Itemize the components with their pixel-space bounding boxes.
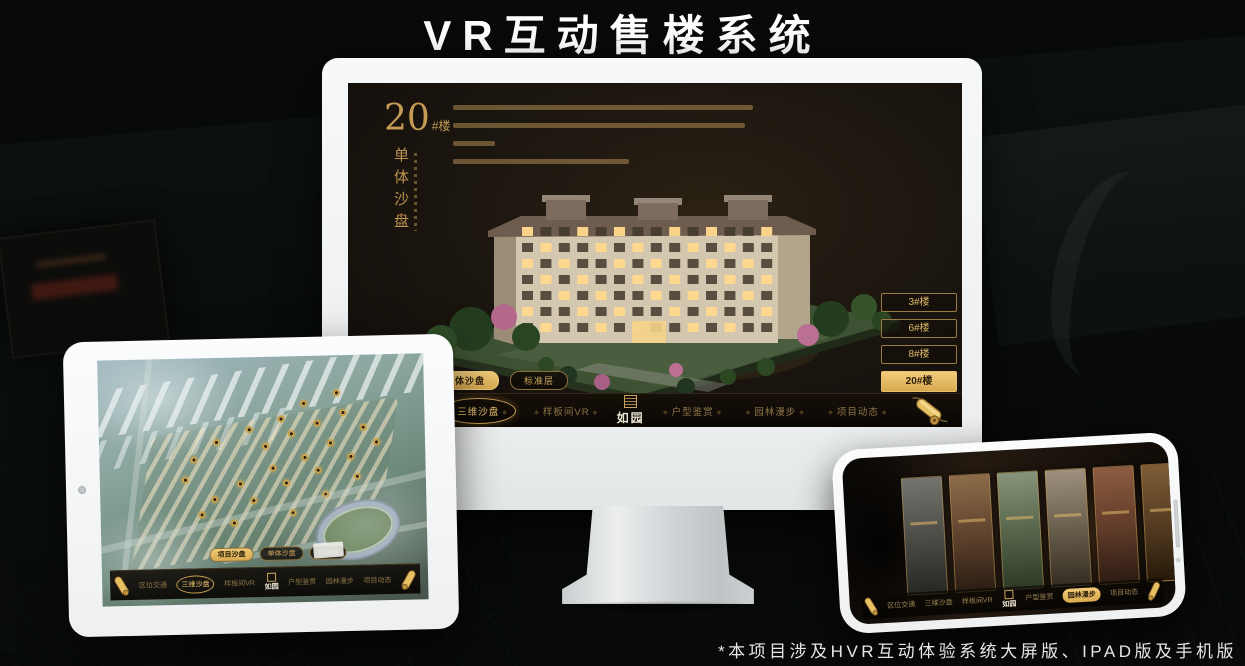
cloud-mist: [97, 353, 249, 461]
window-dot: [651, 259, 662, 268]
stage: VR互动售楼系统 20#楼 单体沙盘: [0, 0, 1245, 666]
window-dot: [577, 275, 588, 284]
nav-item-garden-walk[interactable]: 园林漫步: [326, 575, 354, 586]
nav-item-floorplan-gallery[interactable]: 户型鉴赏: [288, 576, 316, 587]
window-dot: [743, 275, 754, 284]
nav-item-model-room-vr[interactable]: 样板间VR: [529, 401, 603, 421]
window-dot: [669, 323, 680, 332]
window-dot: [651, 307, 662, 316]
window-dot: [522, 243, 533, 252]
text-line: [453, 159, 629, 164]
window-dot: [577, 259, 588, 268]
window-dot: [632, 275, 643, 284]
window-dot: [761, 275, 772, 284]
window-dot: [743, 243, 754, 252]
scroll-menu-icon[interactable]: [1147, 580, 1161, 603]
background-sign: [0, 219, 170, 359]
window-dot: [540, 227, 551, 236]
seal-icon: [624, 395, 637, 408]
gallery-card[interactable]: [901, 476, 949, 596]
window-dot: [724, 323, 735, 332]
gallery-card[interactable]: [997, 470, 1045, 590]
building-badge[interactable]: [300, 400, 307, 407]
window-dot: [596, 243, 607, 252]
window-dot: [577, 323, 588, 332]
window-dot: [540, 243, 551, 252]
window-dot: [559, 275, 570, 284]
window-dot: [688, 259, 699, 268]
window-dot: [724, 291, 735, 300]
nav-item-garden-walk[interactable]: 园林漫步: [1062, 587, 1101, 603]
nav-item-project-news[interactable]: 项目动态: [823, 401, 892, 421]
window-dot: [706, 307, 717, 316]
window-dot: [651, 243, 662, 252]
window-dot: [614, 275, 625, 284]
brand-logo: 如园: [1002, 589, 1017, 609]
window-dot: [596, 259, 607, 268]
building-badge[interactable]: [314, 420, 321, 427]
nav-item-garden-walk[interactable]: 园林漫步: [741, 401, 810, 421]
nav-item-project-news[interactable]: 项目动态: [363, 575, 391, 586]
window-dot: [688, 243, 699, 252]
window-dot: [522, 227, 533, 236]
nav-item-3d-sandbox[interactable]: 三维沙盘: [924, 597, 953, 609]
monitor-stand-shadow: [545, 601, 773, 613]
building-badge[interactable]: [211, 496, 218, 503]
window-dot: [706, 275, 717, 284]
nav-item-location-transport[interactable]: 区位交通: [887, 599, 916, 611]
window-dot: [688, 227, 699, 236]
building-badge[interactable]: [301, 454, 308, 461]
window-dot: [596, 323, 607, 332]
window-dot: [669, 275, 680, 284]
window-dot: [724, 307, 735, 316]
window-dot: [540, 323, 551, 332]
window-dot: [724, 259, 735, 268]
background-river: [1031, 160, 1190, 391]
nav-item-project-news[interactable]: 项目动态: [1110, 587, 1139, 599]
building-badge[interactable]: [288, 430, 295, 437]
gallery-card[interactable]: [949, 473, 997, 593]
window-dot: [706, 227, 717, 236]
building-number: 20: [384, 98, 430, 139]
sign-red-text-blur: [31, 274, 118, 300]
window-dot: [522, 291, 533, 300]
nav-item-floorplan-gallery[interactable]: 户型鉴赏: [1025, 592, 1054, 604]
phone-camera-icon: [1175, 557, 1180, 562]
building-badge[interactable]: [262, 443, 269, 450]
gallery-card-row: [901, 462, 1177, 596]
building-heading: 20#楼: [384, 101, 451, 137]
window-dot: [577, 307, 588, 316]
window-dot: [651, 291, 662, 300]
window-dot: [669, 243, 680, 252]
window-dot: [559, 227, 570, 236]
background-photo: [973, 104, 1245, 347]
window-dot: [632, 291, 643, 300]
floor-button-3[interactable]: 3#楼: [881, 293, 957, 312]
tab-single-building-sandbox[interactable]: 单体沙盘: [259, 546, 303, 561]
floor-button-20[interactable]: 20#楼: [881, 371, 957, 392]
floor-button-8[interactable]: 8#楼: [881, 345, 957, 364]
window-dot: [577, 227, 588, 236]
window-dot: [743, 323, 754, 332]
window-dot: [559, 307, 570, 316]
window-dot: [596, 307, 607, 316]
building-badge[interactable]: [278, 415, 285, 422]
window-dot: [706, 291, 717, 300]
monitor-stand: [556, 506, 760, 604]
text-line: [453, 141, 495, 146]
phone-screen: 区位交通 三维沙盘 样板间VR 如园 户型鉴赏 园林漫步 项目动态: [842, 441, 1177, 625]
window-dot: [540, 307, 551, 316]
tablet-camera-icon: [78, 485, 86, 493]
brand-logo-text: 如园: [265, 582, 279, 592]
window-dot: [743, 259, 754, 268]
nav-item-model-room-vr[interactable]: 样板间VR: [962, 595, 993, 607]
window-dot: [669, 307, 680, 316]
window-dot: [540, 259, 551, 268]
building-badge[interactable]: [359, 423, 366, 430]
building-badge[interactable]: [327, 439, 334, 446]
window-dot: [596, 275, 607, 284]
gallery-card[interactable]: [1045, 468, 1093, 588]
window-dot: [761, 243, 772, 252]
window-dot: [632, 227, 643, 236]
window-dot: [706, 259, 717, 268]
window-dot: [596, 227, 607, 236]
window-dot: [743, 307, 754, 316]
window-dot: [669, 291, 680, 300]
window-dot: [688, 275, 699, 284]
window-dot: [724, 243, 735, 252]
window-dot: [632, 259, 643, 268]
window-dot: [522, 275, 533, 284]
window-dot: [688, 307, 699, 316]
window-dot: [669, 259, 680, 268]
window-dot: [559, 291, 570, 300]
window-dot: [614, 259, 625, 268]
floor-button-group: 3#楼 6#楼 8#楼 20#楼: [881, 293, 957, 392]
window-dot: [724, 227, 735, 236]
seal-icon: [267, 573, 276, 582]
phone-speaker-slot: [1173, 500, 1180, 548]
window-dot: [651, 227, 662, 236]
scroll-menu-icon[interactable]: [114, 574, 130, 598]
scroll-menu-icon[interactable]: [401, 567, 417, 591]
brand-logo-text: 如园: [1002, 598, 1017, 609]
sign-small-text-blur: [36, 253, 106, 268]
brand-logo: 如园: [264, 573, 278, 592]
brand-logo: 如园: [617, 395, 645, 426]
building-badge[interactable]: [333, 390, 340, 397]
window-dot: [614, 307, 625, 316]
popup-box: [313, 541, 344, 558]
window-dot: [632, 307, 643, 316]
window-dot: [669, 227, 680, 236]
window-dot: [614, 323, 625, 332]
brand-logo-text: 如园: [617, 409, 645, 426]
window-dot: [540, 291, 551, 300]
window-dot: [724, 275, 735, 284]
building-number-suffix: #楼: [432, 119, 451, 133]
window-dot: [743, 291, 754, 300]
building-badge[interactable]: [347, 453, 354, 460]
text-line: [453, 105, 753, 110]
nav-item-model-room-vr[interactable]: 样板间VR: [224, 578, 255, 589]
window-dot: [761, 323, 772, 332]
building-badge[interactable]: [181, 477, 188, 484]
nav-item-3d-sandbox[interactable]: 三维沙盘: [176, 575, 214, 594]
window-dot: [706, 243, 717, 252]
window-dot: [688, 323, 699, 332]
window-dot: [596, 291, 607, 300]
window-dot: [522, 259, 533, 268]
window-dot: [577, 243, 588, 252]
text-line: [453, 123, 745, 128]
window-dot: [706, 323, 717, 332]
window-dot: [651, 275, 662, 284]
window-dot: [743, 227, 754, 236]
window-dot: [522, 307, 533, 316]
window-dot: [559, 243, 570, 252]
page-title: VR互动售楼系统: [0, 2, 1245, 63]
window-dot: [688, 291, 699, 300]
window-dot: [614, 227, 625, 236]
building-badge[interactable]: [237, 480, 244, 487]
window-dot: [540, 275, 551, 284]
phone-device: 区位交通 三维沙盘 样板间VR 如园 户型鉴赏 园林漫步 项目动态: [831, 431, 1187, 634]
building-badge[interactable]: [373, 438, 380, 445]
window-dot: [632, 243, 643, 252]
window-dot: [761, 259, 772, 268]
window-dot: [559, 323, 570, 332]
scroll-menu-icon[interactable]: [864, 595, 878, 618]
scroll-menu-icon[interactable]: [906, 395, 952, 427]
gallery-card[interactable]: [1092, 465, 1140, 585]
building-badge[interactable]: [231, 520, 238, 527]
tablet-screen: 项目沙盘 单体沙盘 标准层 区位交通 三维沙盘 样板间VR 如园 户型鉴赏 园林…: [97, 353, 428, 606]
intro-paragraph-blur: [453, 105, 753, 177]
tab-project-sandbox[interactable]: 项目沙盘: [209, 547, 253, 562]
gallery-card[interactable]: [1140, 462, 1176, 582]
window-dot: [614, 291, 625, 300]
window-dot: [614, 243, 625, 252]
building-badge[interactable]: [250, 497, 257, 504]
window-dot: [761, 227, 772, 236]
tab-standard-floor[interactable]: 标准层: [510, 371, 568, 390]
tablet-device: 项目沙盘 单体沙盘 标准层 区位交通 三维沙盘 样板间VR 如园 户型鉴赏 园林…: [63, 334, 460, 638]
window-dot: [761, 307, 772, 316]
window-dot: [559, 259, 570, 268]
nav-item-floorplan-gallery[interactable]: 户型鉴赏: [658, 401, 727, 421]
floor-button-6[interactable]: 6#楼: [881, 319, 957, 338]
nav-item-location-transport[interactable]: 区位交通: [139, 580, 167, 591]
window-dot: [761, 291, 772, 300]
footer-note: *本项目涉及HVR互动体验系统大屏版、IPAD版及手机版: [718, 637, 1237, 662]
building-badge[interactable]: [340, 409, 347, 416]
window-dot: [577, 291, 588, 300]
